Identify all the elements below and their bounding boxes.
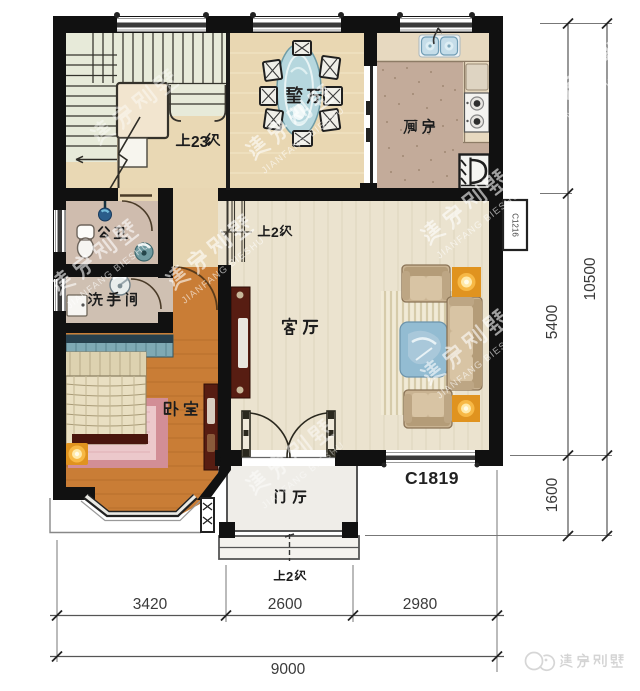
svg-text:1600: 1600 [544, 477, 561, 512]
svg-text:C1216: C1216 [511, 213, 520, 237]
svg-text:2600: 2600 [268, 596, 303, 613]
svg-text:10500: 10500 [582, 257, 599, 300]
svg-text:5400: 5400 [544, 304, 561, 339]
svg-text:2: 2 [271, 224, 279, 240]
svg-text:2: 2 [286, 569, 293, 584]
svg-text:C1819: C1819 [405, 468, 459, 488]
svg-text:3420: 3420 [133, 596, 168, 613]
svg-text:2980: 2980 [403, 596, 438, 613]
svg-text:9000: 9000 [271, 661, 306, 678]
